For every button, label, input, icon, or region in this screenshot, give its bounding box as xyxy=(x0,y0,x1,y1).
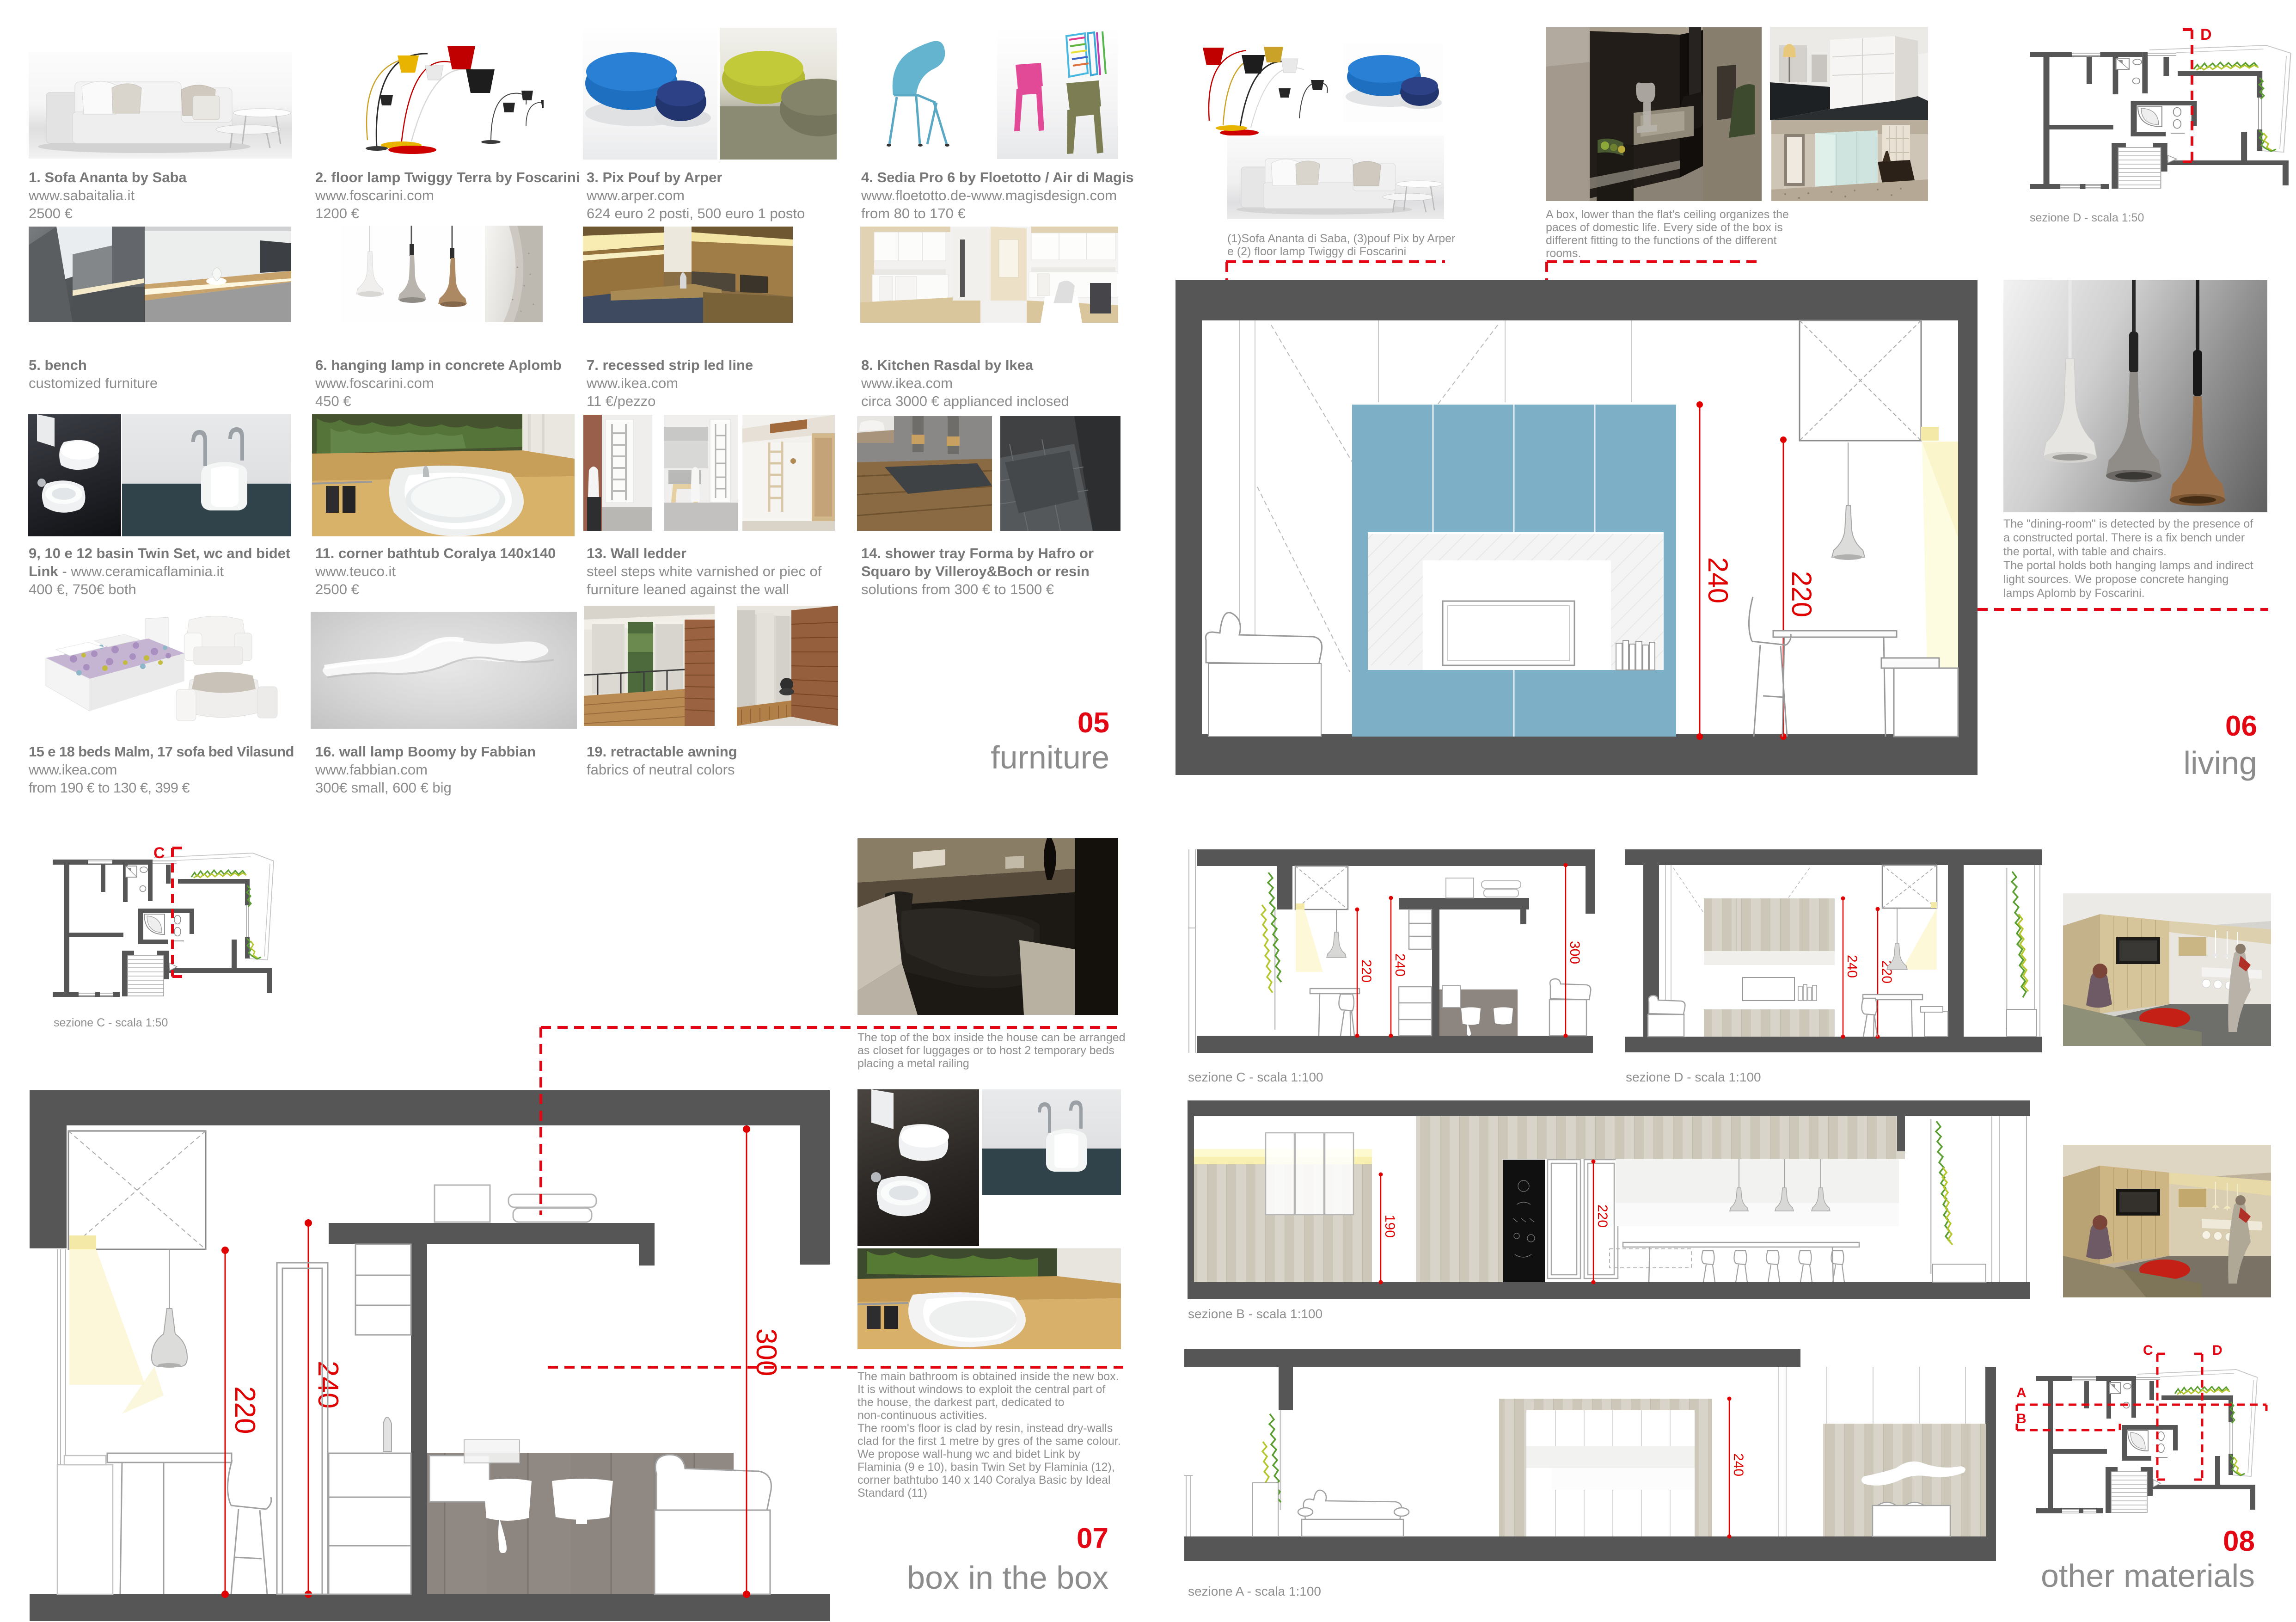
svg-text:C: C xyxy=(2143,1343,2153,1358)
svg-text:220: 220 xyxy=(1595,1204,1610,1228)
svg-text:240: 240 xyxy=(1702,557,1733,603)
svg-text:240: 240 xyxy=(1731,1453,1746,1476)
svg-text:C: C xyxy=(153,844,165,862)
svg-text:300: 300 xyxy=(1567,941,1582,964)
svg-text:240: 240 xyxy=(1392,953,1408,977)
svg-text:190: 190 xyxy=(1382,1215,1397,1238)
svg-text:220: 220 xyxy=(1786,571,1817,617)
svg-text:220: 220 xyxy=(1359,959,1374,983)
svg-text:240: 240 xyxy=(1844,955,1860,978)
svg-text:D: D xyxy=(2200,26,2212,43)
svg-text:220: 220 xyxy=(229,1386,261,1434)
svg-text:D: D xyxy=(2212,1343,2223,1358)
svg-text:A: A xyxy=(2016,1385,2027,1401)
